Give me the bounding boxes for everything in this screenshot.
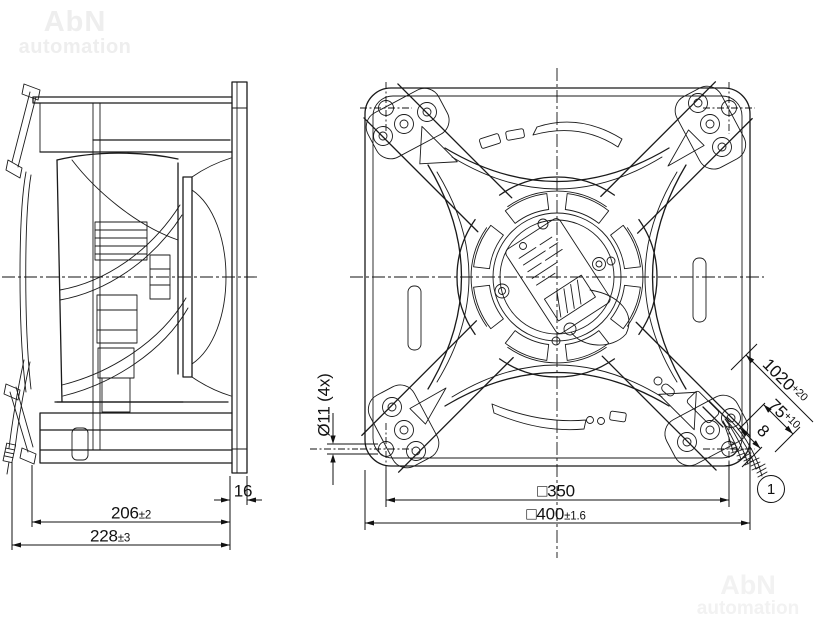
technical-drawing-page: AbN automation AbN automation <box>0 0 816 624</box>
dim-350-label: □350 <box>537 483 575 500</box>
dim-16-label: 16 <box>234 483 253 500</box>
mounting-brackets <box>4 84 40 464</box>
impeller-blades <box>57 153 188 402</box>
dim-hole-label: Ø11 (4x) <box>316 373 333 436</box>
dim-400-label: □400±1.6 <box>526 505 585 523</box>
motor-assembly <box>20 172 170 460</box>
side-view-drawing <box>2 82 258 474</box>
dim-228-label: 228±3 <box>90 527 130 545</box>
side-view-cable <box>3 360 30 474</box>
mounting-plate-edge <box>232 82 247 473</box>
mounting-holes <box>360 82 755 475</box>
support-arms <box>204 0 816 624</box>
dim-206-label: 206±2 <box>111 504 151 522</box>
front-view-drawing <box>204 0 816 624</box>
callout-balloon-1: 1 <box>757 475 785 503</box>
